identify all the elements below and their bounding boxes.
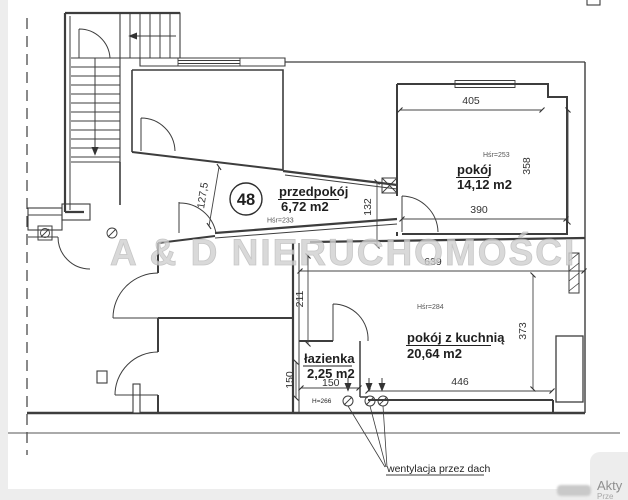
wall-pier [133,384,140,413]
room-name-pokoj-z-kuchnia: pokój z kuchnią [407,330,505,345]
bay-block [556,336,583,402]
dim-132: 132 [362,198,374,216]
room-area-pokoj-z-kuchnia: 20,64 m2 [407,346,462,361]
door-arc-left [28,237,90,269]
vent-leader-lines [348,406,387,467]
roof-hatch-symbol [587,0,600,5]
unit-number: 48 [237,191,255,209]
door-arc-bl-1 [113,273,158,318]
agency-watermark: A & D NIERUCHOMOŚCI [110,231,576,273]
dim-446: 446 [451,376,469,388]
dim-211: 211 [294,290,306,307]
window-top-left [178,58,240,66]
dim-150-v: 150 [284,371,296,389]
room-height-lazienka: H=266 [312,398,332,405]
staircase [65,13,180,212]
room-area-lazienka: 2,25 m2 [307,366,355,381]
door-arc-room-a [141,118,175,151]
dim-405: 405 [462,95,480,107]
wall-step [97,371,107,383]
ventilation-note: wentylacja przez dach [386,463,490,475]
closet-left [28,208,62,230]
stair-door-arc [79,29,110,58]
ventilation-symbols [343,378,484,475]
room-height-pokoj: Hśr=253 [483,152,510,159]
room-area-przedpokoj: 6,72 m2 [281,199,329,214]
room-name-lazienka: łazienka [304,351,355,366]
door-arc-pokoj [402,196,438,232]
dim-390: 390 [470,204,488,216]
dim-127-5: 127,5 [195,181,211,209]
dim-line-127-5 [209,167,219,226]
room-height-przedpokoj: Hśr=233 [267,218,294,225]
door-arc-bathroom [333,304,368,341]
room-top-centre [132,70,397,189]
floor-plan-canvas: 405 358 390 132 127,5 639 373 211 446 15… [0,0,628,500]
room-height-pokoj-z-kuchnia: Hśr=284 [417,304,444,311]
floor-plan-page: Akty Prze [0,0,628,500]
dim-358: 358 [521,157,533,175]
dim-373: 373 [517,322,529,340]
room-name-pokoj: pokój [457,162,492,177]
room-name-przedpokoj: przedpokój [279,184,348,199]
room-area-pokoj: 14,12 m2 [457,177,512,192]
